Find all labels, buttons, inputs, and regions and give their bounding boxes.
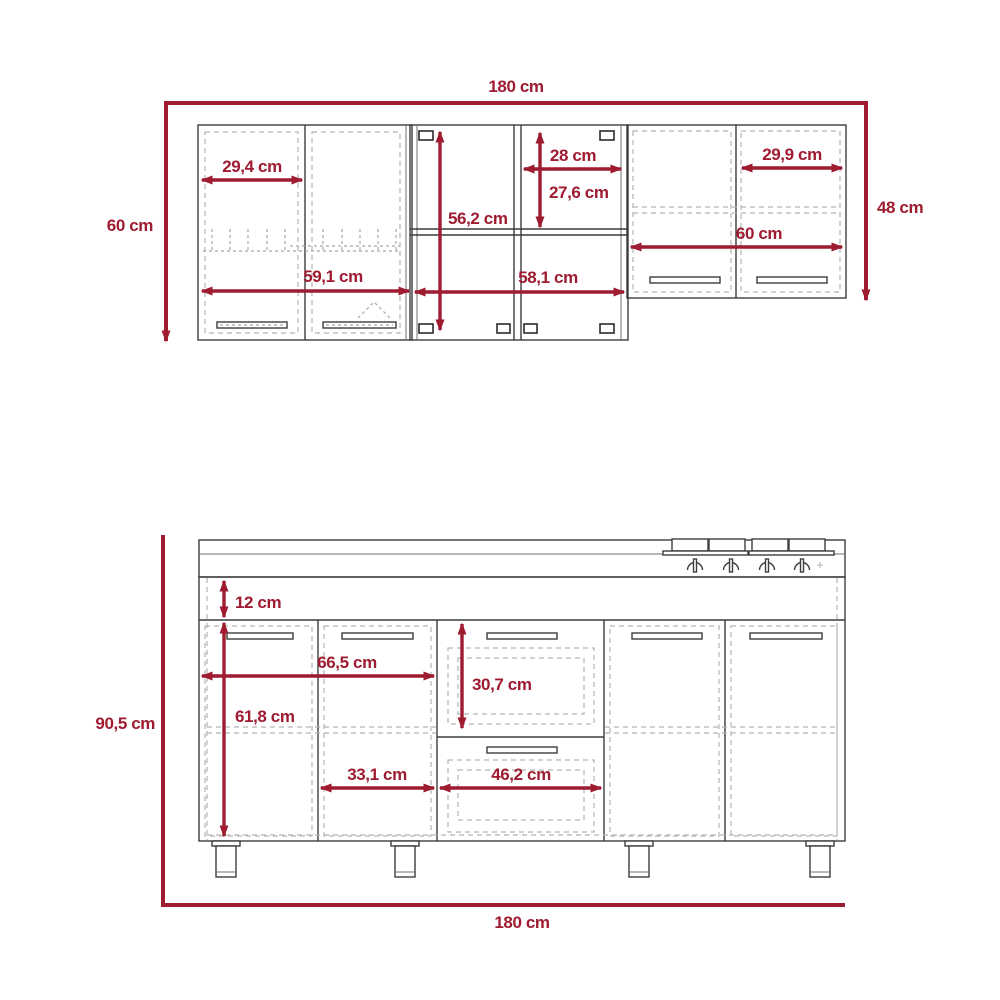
drawer-handle — [487, 747, 557, 753]
burner-grate — [752, 539, 788, 551]
dim-label-left-span-width: 66,5 cm — [317, 653, 377, 672]
burner-grate — [672, 539, 708, 551]
door-handle — [750, 633, 822, 639]
dim-label-mid-top-height: 27,6 cm — [549, 183, 609, 202]
dim-label-upper-total-width: 180 cm — [488, 77, 544, 96]
door-swing-dashed — [358, 302, 390, 318]
leg — [391, 841, 419, 877]
drawing-svg: 180 cm 60 cm 48 cm 29,4 cm 59,1 cm 56,2 … — [0, 0, 1000, 1000]
dim-label-right-unit-width: 60 cm — [736, 224, 782, 243]
door-handle — [632, 633, 702, 639]
door-handle — [342, 633, 413, 639]
dim-label-upper-right-height: 48 cm — [877, 198, 923, 217]
dim-label-upper-left-height: 60 cm — [107, 216, 153, 235]
drawer-handle — [487, 633, 557, 639]
cooktop-knobs — [688, 559, 810, 572]
cabinet-dimension-drawing: 180 cm 60 cm 48 cm 29,4 cm 59,1 cm 56,2 … — [0, 0, 1000, 1000]
lower-cabinets-view: 90,5 cm 180 cm 12 cm 66,5 cm 61,8 cm 30,… — [95, 535, 845, 932]
leg — [625, 841, 653, 877]
dim-label-rail-height: 12 cm — [235, 593, 281, 612]
leg — [212, 841, 240, 877]
dim-label-drawer-width: 46,2 cm — [491, 765, 551, 784]
dim-label-mid-inner-height: 56,2 cm — [448, 209, 508, 228]
dim-label-lower-height: 90,5 cm — [95, 714, 155, 733]
dim-label-door-width: 33,1 cm — [347, 765, 407, 784]
dish-rack-dashed — [203, 229, 400, 251]
burner-grate — [709, 539, 745, 551]
countertop — [199, 540, 845, 577]
sparkle-mark — [817, 562, 823, 568]
cabinet-legs — [212, 841, 834, 877]
burner-grate — [789, 539, 825, 551]
dim-label-right-door-width: 29,9 cm — [762, 145, 822, 164]
door-handle — [757, 277, 827, 283]
door-handle — [650, 277, 720, 283]
door-handle — [227, 633, 293, 639]
upper-cabinets-view: 180 cm 60 cm 48 cm 29,4 cm 59,1 cm 56,2 … — [107, 77, 924, 341]
dim-label-left-door-width: 29,4 cm — [222, 157, 282, 176]
dim-label-mid-col-width: 28 cm — [550, 146, 596, 165]
dim-label-mid-unit-width: 58,1 cm — [518, 268, 578, 287]
dim-label-left-unit-width: 59,1 cm — [303, 267, 363, 286]
leg — [806, 841, 834, 877]
dim-label-drawer-height: 30,7 cm — [472, 675, 532, 694]
upper-dimension-bracket — [166, 103, 866, 341]
dim-label-lower-total-width: 180 cm — [494, 913, 550, 932]
cooktop — [663, 539, 834, 572]
dim-label-door-height: 61,8 cm — [235, 707, 295, 726]
base-cabinet-body — [199, 577, 845, 841]
